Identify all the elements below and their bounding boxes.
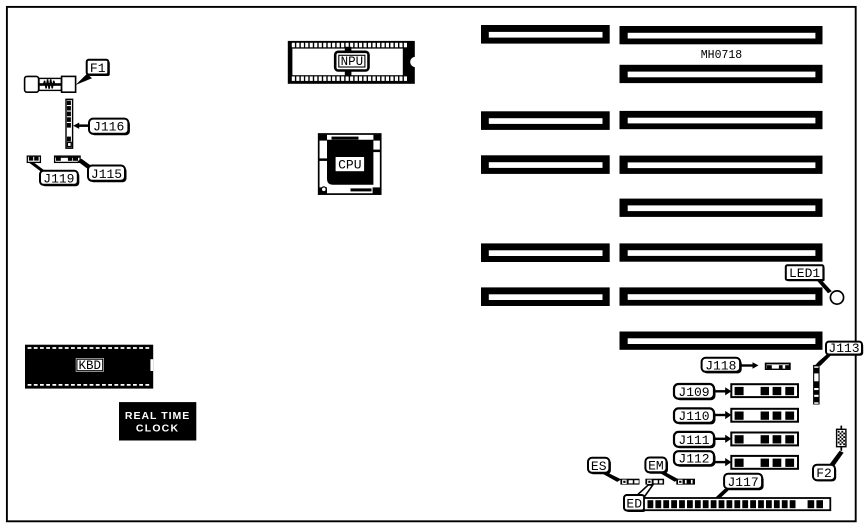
svg-text:CPU: CPU [338,158,361,173]
svg-text:EM: EM [648,458,664,473]
svg-text:LED1: LED1 [789,266,820,281]
svg-text:NPU: NPU [341,55,364,69]
svg-text:ES: ES [591,459,607,474]
svg-text:J116: J116 [93,120,124,135]
svg-text:KBD: KBD [79,359,102,373]
svg-text:J111: J111 [678,433,709,448]
svg-text:J115: J115 [91,167,122,182]
svg-text:ED: ED [626,496,642,511]
svg-text:J117: J117 [727,475,758,490]
svg-text:REAL TIME: REAL TIME [125,410,190,422]
svg-text:J118: J118 [705,358,736,373]
svg-text:J112: J112 [678,452,709,467]
svg-text:CLOCK: CLOCK [136,422,179,434]
svg-text:MH0718: MH0718 [701,49,743,62]
svg-text:F1: F1 [90,61,106,76]
svg-text:J119: J119 [43,171,74,186]
svg-text:J110: J110 [678,409,709,424]
svg-text:J109: J109 [678,385,709,400]
svg-text:J113: J113 [828,341,859,356]
svg-text:F2: F2 [816,466,832,481]
